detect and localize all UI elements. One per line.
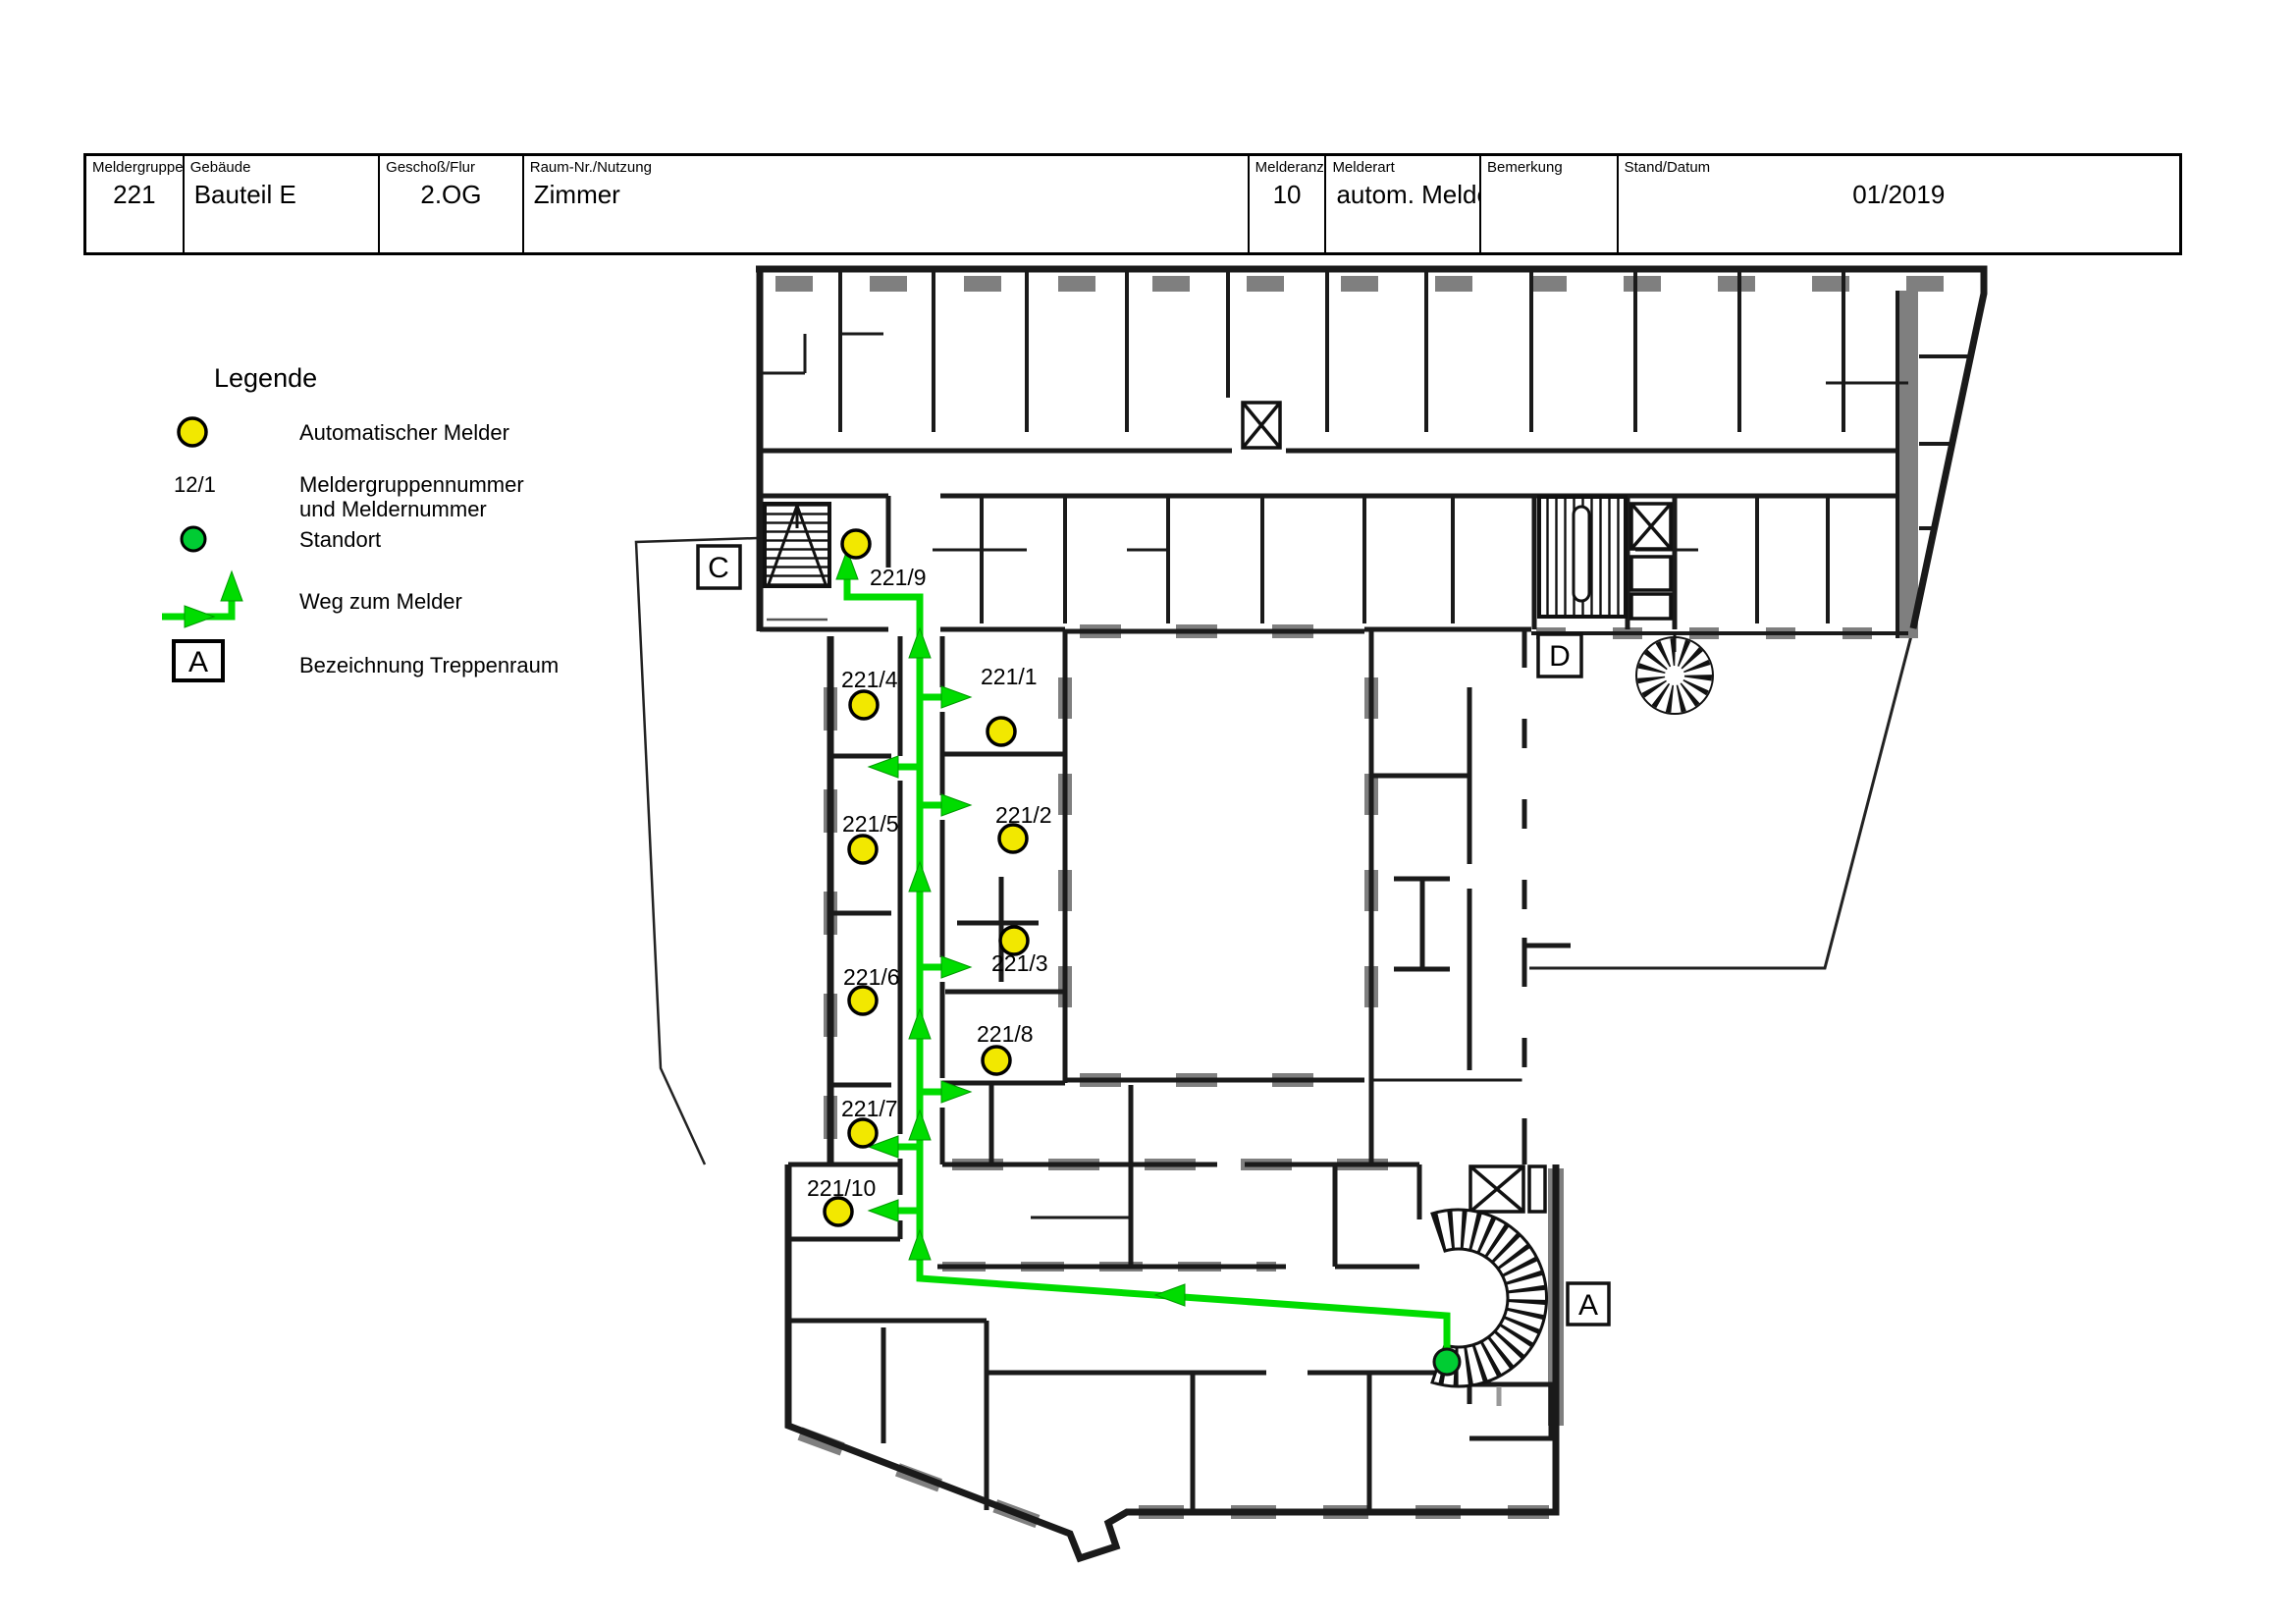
detector-label: 221/10: [807, 1175, 876, 1201]
arrow-left-icon: [869, 1200, 898, 1221]
stairwell-letter-a: A: [1578, 1289, 1598, 1322]
detector-label: 221/7: [841, 1096, 898, 1121]
arrow-up-icon: [909, 628, 931, 658]
detector-label: 221/6: [843, 964, 900, 990]
detector-marker: [988, 718, 1015, 745]
detector-marker: [983, 1047, 1010, 1074]
detector-marker: [849, 836, 877, 863]
floor-plan: C D A 221/9221/4221/1221/5221/2221/3221/…: [0, 0, 2296, 1624]
arrow-right-icon: [941, 686, 971, 708]
detector-marker: [850, 691, 878, 719]
detail-walls: [760, 334, 1908, 1218]
stairwell-letter-d: D: [1549, 640, 1571, 673]
arrow-right-icon: [941, 794, 971, 816]
escape-path-main: [847, 564, 1447, 1362]
arrow-left-icon: [1155, 1284, 1185, 1306]
terrace-outline-east: [1529, 628, 1913, 968]
arrow-up-icon: [909, 1009, 931, 1039]
room-partition-walls: [840, 271, 1970, 638]
terrace-outline-west: [636, 538, 758, 1164]
detector-marker: [849, 1119, 877, 1147]
spiral-stairs: [1636, 633, 1713, 714]
interior-walls: [760, 451, 1897, 1510]
detector-marker: [842, 530, 870, 558]
location-dot: [1434, 1349, 1460, 1375]
arrow-up-icon: [909, 1230, 931, 1260]
detector-label: 221/1: [981, 664, 1038, 689]
detector-marker: [849, 987, 877, 1014]
stairwell-letter-c: C: [708, 552, 729, 584]
stairs-a: [1432, 1210, 1547, 1406]
detector-label: 221/2: [995, 802, 1052, 828]
detector-marker: [825, 1198, 852, 1225]
stairs-d: [1539, 497, 1626, 617]
stairs-c: [765, 504, 829, 620]
detector-label: 221/4: [841, 667, 898, 692]
arrow-left-icon: [869, 756, 898, 778]
detector-label: 221/3: [991, 950, 1048, 976]
detector-label: 221/5: [842, 811, 899, 837]
arrow-up-icon: [909, 1110, 931, 1140]
detector-label: 221/9: [870, 565, 927, 590]
detector-marker: [999, 825, 1027, 852]
arrow-right-icon: [941, 956, 971, 978]
window-pier-bands: [775, 284, 1973, 1532]
arrow-up-icon: [909, 862, 931, 892]
fire-alarm-floor-plan-page: Meldergruppe 221 Gebäude Bauteil E Gesch…: [0, 0, 2296, 1624]
detector-label: 221/8: [977, 1021, 1034, 1047]
